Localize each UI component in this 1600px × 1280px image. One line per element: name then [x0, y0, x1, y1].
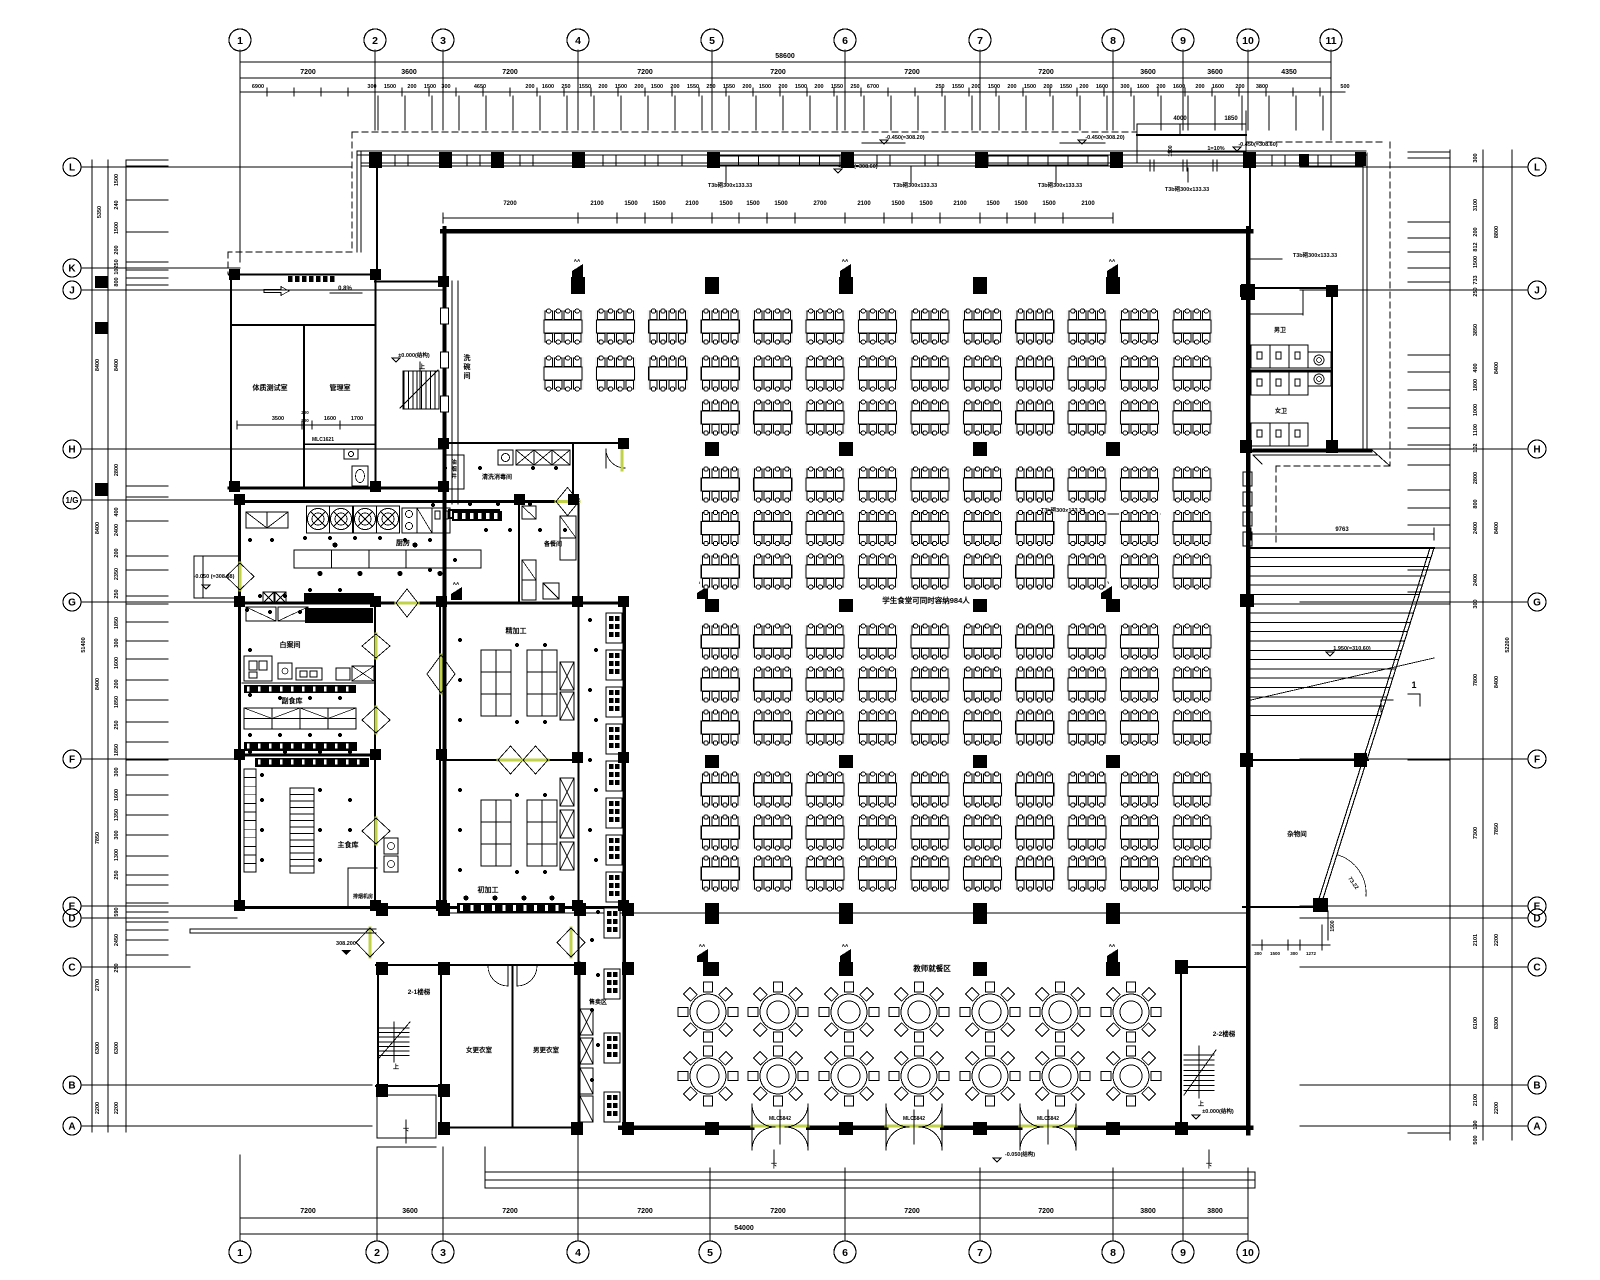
svg-text:240: 240	[114, 200, 120, 209]
svg-text:1800: 1800	[1473, 379, 1479, 391]
svg-text:F: F	[1534, 755, 1540, 766]
svg-text:1500: 1500	[1473, 256, 1479, 268]
svg-text:3600: 3600	[402, 1208, 418, 1215]
svg-text:1: 1	[237, 1247, 243, 1259]
svg-text:1500: 1500	[651, 84, 663, 90]
svg-text:250: 250	[850, 84, 859, 90]
svg-text:2100: 2100	[953, 201, 967, 207]
svg-text:1: 1	[1411, 680, 1416, 690]
svg-text:200: 200	[301, 418, 309, 423]
svg-text:6: 6	[842, 1247, 848, 1259]
svg-text:D: D	[1533, 914, 1540, 925]
svg-text:300: 300	[1473, 153, 1479, 162]
svg-text:7200: 7200	[637, 69, 653, 76]
svg-text:排烟机房: 排烟机房	[353, 893, 373, 900]
svg-text:2350: 2350	[114, 568, 120, 580]
svg-text:10: 10	[1242, 35, 1254, 47]
svg-text:1500: 1500	[1024, 84, 1036, 90]
svg-text:1500: 1500	[759, 84, 771, 90]
svg-text:1600: 1600	[1212, 84, 1224, 90]
svg-text:1500: 1500	[384, 84, 396, 90]
svg-text:3: 3	[440, 35, 446, 47]
svg-text:烟: 烟	[451, 465, 457, 473]
svg-text:1600: 1600	[1137, 84, 1149, 90]
svg-text:6300: 6300	[114, 1042, 120, 1054]
svg-text:下: 下	[1206, 1163, 1212, 1170]
svg-text:AA: AA	[453, 581, 460, 586]
svg-text:-0.450(=308.20): -0.450(=308.20)	[1085, 135, 1124, 141]
svg-text:9763: 9763	[1335, 527, 1349, 533]
svg-text:5: 5	[709, 35, 715, 47]
svg-text:1550: 1550	[579, 84, 591, 90]
svg-text:7200: 7200	[502, 1208, 518, 1215]
svg-text:H: H	[1533, 445, 1540, 456]
svg-text:6100: 6100	[1473, 1017, 1479, 1029]
svg-text:-0.050(结构): -0.050(结构)	[1005, 1150, 1035, 1158]
svg-text:备餐间: 备餐间	[543, 540, 562, 548]
svg-text:2200: 2200	[1494, 934, 1500, 946]
svg-text:200: 200	[1079, 84, 1088, 90]
svg-text:1500: 1500	[1168, 145, 1174, 156]
svg-text:8400: 8400	[95, 359, 101, 371]
svg-text:G: G	[1533, 598, 1541, 609]
svg-text:9: 9	[1180, 35, 1186, 47]
svg-text:400: 400	[114, 507, 120, 516]
svg-text:4: 4	[575, 35, 581, 47]
svg-text:58600: 58600	[775, 53, 795, 60]
svg-text:250: 250	[114, 963, 120, 972]
svg-text:2101: 2101	[1473, 934, 1479, 946]
svg-text:7200: 7200	[300, 69, 316, 76]
svg-text:1500: 1500	[919, 201, 933, 207]
svg-text:T3b砌300x133.33: T3b砌300x133.33	[893, 181, 937, 189]
svg-text:8400: 8400	[1494, 362, 1500, 374]
svg-text:1500: 1500	[719, 201, 733, 207]
svg-text:7800: 7800	[1473, 674, 1479, 686]
svg-text:1500: 1500	[1270, 951, 1281, 956]
svg-text:1500: 1500	[746, 201, 760, 207]
svg-text:副食库: 副食库	[282, 696, 303, 705]
svg-text:6700: 6700	[867, 84, 879, 90]
svg-text:6300: 6300	[95, 1042, 101, 1054]
svg-text:102: 102	[1473, 443, 1479, 452]
svg-text:8: 8	[1110, 1247, 1116, 1259]
svg-text:250: 250	[114, 720, 120, 729]
svg-text:1500: 1500	[652, 201, 666, 207]
svg-text:250: 250	[114, 589, 120, 598]
svg-text:200: 200	[598, 84, 607, 90]
svg-text:E: E	[69, 902, 76, 913]
svg-text:1500: 1500	[1014, 201, 1028, 207]
svg-text:1550: 1550	[1060, 84, 1072, 90]
svg-text:300: 300	[441, 84, 450, 90]
svg-text:1500: 1500	[424, 84, 436, 90]
svg-text:男更衣室: 男更衣室	[532, 1045, 560, 1054]
svg-text:洗: 洗	[464, 353, 471, 362]
svg-text:1500: 1500	[624, 201, 638, 207]
svg-text:7200: 7200	[637, 1208, 653, 1215]
svg-text:8400: 8400	[1494, 522, 1500, 534]
svg-text:2100: 2100	[685, 201, 699, 207]
svg-text:1300: 1300	[114, 849, 120, 861]
svg-text:9: 9	[1180, 1247, 1186, 1259]
svg-text:10250: 10250	[114, 259, 120, 274]
svg-text:7850: 7850	[1494, 823, 1500, 835]
svg-text:2400: 2400	[1473, 574, 1479, 586]
svg-text:308.200: 308.200	[336, 941, 356, 947]
svg-text:1/G: 1/G	[66, 496, 79, 505]
svg-text:7200: 7200	[502, 69, 518, 76]
svg-text:3600: 3600	[1207, 69, 1223, 76]
svg-text:2450: 2450	[114, 934, 120, 946]
svg-text:初加工: 初加工	[478, 885, 499, 894]
svg-text:2400: 2400	[114, 524, 120, 536]
svg-text:200: 200	[114, 679, 120, 688]
svg-text:733: 733	[1473, 275, 1479, 284]
svg-text:11: 11	[1325, 35, 1336, 47]
svg-text:5350: 5350	[97, 206, 103, 218]
svg-text:MLC5842: MLC5842	[903, 1116, 925, 1122]
svg-text:1000: 1000	[1473, 404, 1479, 416]
svg-text:6900: 6900	[252, 84, 264, 90]
svg-text:4650: 4650	[474, 84, 486, 90]
svg-text:3500: 3500	[272, 416, 284, 422]
svg-text:3600: 3600	[1140, 69, 1156, 76]
svg-text:管理室: 管理室	[330, 383, 351, 392]
svg-text:女更衣室: 女更衣室	[466, 1045, 493, 1054]
svg-text:F: F	[69, 755, 75, 766]
svg-text:200: 200	[1043, 84, 1052, 90]
svg-text:L: L	[69, 163, 75, 174]
svg-text:AA: AA	[1109, 943, 1116, 948]
svg-text:5: 5	[707, 1247, 713, 1259]
svg-text:2100: 2100	[590, 201, 604, 207]
svg-text:200: 200	[634, 84, 643, 90]
svg-text:54000: 54000	[734, 1225, 754, 1232]
svg-text:250: 250	[114, 870, 120, 879]
svg-text:2: 2	[374, 1247, 380, 1259]
svg-text:200: 200	[114, 548, 120, 557]
svg-text:200: 200	[1195, 84, 1204, 90]
svg-text:200: 200	[1007, 84, 1016, 90]
svg-text:800: 800	[114, 277, 120, 286]
svg-text:6: 6	[842, 35, 848, 47]
svg-text:8300: 8300	[1494, 1017, 1500, 1029]
svg-text:200: 200	[1235, 84, 1244, 90]
svg-text:7300: 7300	[1473, 827, 1479, 839]
svg-text:1850: 1850	[114, 744, 120, 756]
svg-text:±0.000(结构): ±0.000(结构)	[1202, 1107, 1234, 1115]
svg-text:清洗消毒间: 清洗消毒间	[482, 473, 512, 481]
svg-text:4350: 4350	[1281, 69, 1297, 76]
svg-text:MLC5842: MLC5842	[769, 1116, 791, 1122]
svg-text:女卫: 女卫	[1275, 407, 1287, 415]
svg-text:8400: 8400	[114, 359, 120, 371]
svg-text:300: 300	[114, 767, 120, 776]
svg-text:10: 10	[1242, 1247, 1254, 1259]
svg-text:7200: 7200	[904, 1208, 920, 1215]
svg-text:T3b砌300x133.33: T3b砌300x133.33	[1165, 185, 1209, 193]
svg-text:1=10%: 1=10%	[1207, 146, 1224, 152]
svg-text:8400: 8400	[95, 522, 101, 534]
svg-text:500: 500	[1473, 1135, 1479, 1144]
svg-text:2200: 2200	[114, 1102, 120, 1114]
svg-text:2: 2	[372, 35, 378, 47]
svg-text:2700: 2700	[95, 979, 101, 991]
svg-text:精加工: 精加工	[506, 626, 527, 635]
svg-text:1500: 1500	[114, 174, 120, 186]
svg-text:G: G	[68, 598, 76, 609]
svg-text:1.950(=310.60): 1.950(=310.60)	[1333, 646, 1371, 652]
svg-text:8400: 8400	[95, 678, 101, 690]
svg-text:1272: 1272	[1306, 951, 1317, 956]
svg-text:上: 上	[393, 1063, 399, 1071]
svg-text:-0.450(=308.20): -0.450(=308.20)	[885, 135, 924, 141]
svg-text:400: 400	[1473, 363, 1479, 372]
svg-text:2800: 2800	[1473, 472, 1479, 484]
svg-text:男卫: 男卫	[1274, 326, 1286, 334]
svg-text:J: J	[69, 286, 75, 297]
svg-text:D: D	[68, 914, 75, 925]
svg-text:1500: 1500	[114, 222, 120, 234]
svg-text:4: 4	[575, 1247, 581, 1259]
svg-text:AA: AA	[842, 258, 849, 263]
svg-text:下: 下	[771, 1163, 777, 1170]
svg-text:300: 300	[1120, 84, 1129, 90]
svg-text:1500: 1500	[795, 84, 807, 90]
svg-text:2200: 2200	[95, 1102, 101, 1114]
svg-text:300: 300	[114, 830, 120, 839]
svg-text:-0.450(=308.60): -0.450(=308.60)	[1238, 142, 1277, 148]
svg-text:K: K	[68, 264, 76, 275]
svg-text:250: 250	[706, 84, 715, 90]
svg-text:1700: 1700	[351, 416, 363, 422]
svg-text:7: 7	[977, 35, 983, 47]
svg-text:1550: 1550	[687, 84, 699, 90]
svg-text:1500: 1500	[986, 201, 1000, 207]
svg-text:T3b砌300x133.33: T3b砌300x133.33	[1293, 251, 1337, 259]
svg-text:200: 200	[742, 84, 751, 90]
svg-text:杂物间: 杂物间	[1287, 829, 1307, 838]
svg-text:2100: 2100	[1473, 1094, 1479, 1106]
svg-text:3600: 3600	[401, 69, 417, 76]
svg-text:1500: 1500	[988, 84, 1000, 90]
svg-text:190: 190	[1473, 1120, 1479, 1129]
svg-text:4000: 4000	[1173, 116, 1187, 122]
svg-text:AA: AA	[699, 943, 706, 948]
svg-text:200: 200	[407, 84, 416, 90]
svg-text:200: 200	[814, 84, 823, 90]
svg-text:1600: 1600	[114, 789, 120, 801]
svg-text:L: L	[1534, 163, 1540, 174]
svg-text:1850: 1850	[1224, 116, 1238, 122]
svg-text:1550: 1550	[952, 84, 964, 90]
svg-text:2800: 2800	[114, 464, 120, 476]
svg-text:AA: AA	[1109, 258, 1116, 263]
svg-text:碗: 碗	[464, 362, 471, 371]
svg-text:1: 1	[237, 35, 243, 47]
svg-text:2100: 2100	[1081, 201, 1095, 207]
svg-text:1100: 1100	[1473, 424, 1479, 436]
svg-text:B: B	[1533, 1081, 1540, 1092]
svg-text:250: 250	[561, 84, 570, 90]
svg-text:8800: 8800	[1494, 226, 1500, 238]
svg-text:1500: 1500	[615, 84, 627, 90]
svg-text:0.8%: 0.8%	[338, 286, 352, 292]
svg-text:白案间: 白案间	[280, 640, 301, 649]
svg-text:200: 200	[114, 245, 120, 254]
svg-text:590: 590	[114, 907, 120, 916]
svg-text:7200: 7200	[904, 69, 920, 76]
svg-text:812: 812	[1473, 242, 1479, 251]
svg-text:AA: AA	[574, 258, 581, 263]
svg-text:200: 200	[1473, 227, 1479, 236]
svg-text:250: 250	[935, 84, 944, 90]
svg-text:51400: 51400	[81, 637, 87, 652]
svg-text:油: 油	[451, 458, 457, 466]
svg-text:3850: 3850	[1473, 324, 1479, 336]
svg-text:1600: 1600	[1096, 84, 1108, 90]
svg-text:3800: 3800	[1140, 1208, 1156, 1215]
svg-text:2400: 2400	[1473, 522, 1479, 534]
svg-text:2100: 2100	[857, 201, 871, 207]
svg-text:A: A	[68, 1122, 75, 1133]
svg-text:1500: 1500	[774, 201, 788, 207]
svg-text:250: 250	[1473, 287, 1479, 296]
svg-text:MLC5842: MLC5842	[1037, 1116, 1059, 1122]
svg-text:7: 7	[977, 1247, 983, 1259]
svg-text:AA: AA	[842, 943, 849, 948]
svg-text:3: 3	[440, 1247, 446, 1259]
svg-text:1500: 1500	[891, 201, 905, 207]
svg-text:学生食堂可同时容纳984人: 学生食堂可同时容纳984人	[882, 595, 970, 605]
svg-text:7200: 7200	[1038, 1208, 1054, 1215]
svg-text:主食库: 主食库	[338, 840, 359, 849]
svg-text:1500: 1500	[1330, 920, 1336, 931]
svg-text:200: 200	[301, 410, 309, 415]
svg-text:B: B	[68, 1081, 75, 1092]
svg-text:8: 8	[1110, 35, 1116, 47]
svg-text:T3b砌300x133.33: T3b砌300x133.33	[1038, 181, 1082, 189]
svg-text:2200: 2200	[1494, 1102, 1500, 1114]
svg-text:52200: 52200	[1505, 637, 1511, 652]
svg-text:3100: 3100	[1473, 199, 1479, 211]
svg-text:体质测试室: 体质测试室	[253, 383, 288, 392]
svg-text:1500: 1500	[1042, 201, 1056, 207]
svg-text:300: 300	[114, 638, 120, 647]
svg-text:1550: 1550	[831, 84, 843, 90]
svg-text:教师就餐区: 教师就餐区	[912, 963, 951, 973]
svg-text:C: C	[68, 963, 75, 974]
svg-text:-0.050(=308.60): -0.050(=308.60)	[838, 164, 877, 170]
svg-text:H: H	[68, 445, 75, 456]
svg-text:J: J	[1534, 286, 1540, 297]
svg-text:1600: 1600	[1173, 84, 1185, 90]
svg-text:A: A	[1533, 1122, 1540, 1133]
svg-text:E: E	[1534, 902, 1541, 913]
svg-text:间: 间	[464, 371, 471, 380]
svg-text:MLC1621: MLC1621	[312, 437, 334, 443]
svg-text:1850: 1850	[114, 696, 120, 708]
svg-text:±0.000(结构): ±0.000(结构)	[398, 351, 430, 359]
svg-text:8400: 8400	[1494, 676, 1500, 688]
svg-text:3800: 3800	[1207, 1208, 1223, 1215]
svg-text:2-1楼梯: 2-1楼梯	[408, 987, 431, 996]
svg-text:厨房: 厨房	[396, 538, 410, 547]
svg-text:售卖区: 售卖区	[589, 998, 607, 1006]
svg-text:1600: 1600	[542, 84, 554, 90]
svg-text:T3b砌300x133.33: T3b砌300x133.33	[708, 181, 752, 189]
svg-text:1600: 1600	[114, 657, 120, 669]
svg-text:300: 300	[1473, 599, 1479, 608]
svg-text:C: C	[1533, 963, 1540, 974]
svg-text:200: 200	[971, 84, 980, 90]
svg-text:7200: 7200	[503, 201, 517, 207]
svg-text:1850: 1850	[114, 617, 120, 629]
svg-text:2700: 2700	[813, 201, 827, 207]
svg-text:1350: 1350	[114, 809, 120, 821]
svg-text:500: 500	[1340, 84, 1349, 90]
svg-text:井: 井	[451, 472, 457, 480]
svg-text:7200: 7200	[300, 1208, 316, 1215]
svg-text:7850: 7850	[95, 832, 101, 844]
svg-text:1550: 1550	[723, 84, 735, 90]
svg-text:7200: 7200	[770, 69, 786, 76]
svg-text:7200: 7200	[1038, 69, 1054, 76]
svg-text:800: 800	[1473, 499, 1479, 508]
svg-text:上: 上	[1198, 1100, 1204, 1108]
svg-text:2-2楼梯: 2-2楼梯	[1213, 1029, 1236, 1038]
svg-text:1600: 1600	[324, 416, 336, 422]
svg-text:300: 300	[1290, 951, 1298, 956]
svg-text:300: 300	[1254, 951, 1262, 956]
svg-text:7200: 7200	[770, 1208, 786, 1215]
svg-text:上: 上	[419, 363, 425, 371]
svg-text:200: 200	[525, 84, 534, 90]
